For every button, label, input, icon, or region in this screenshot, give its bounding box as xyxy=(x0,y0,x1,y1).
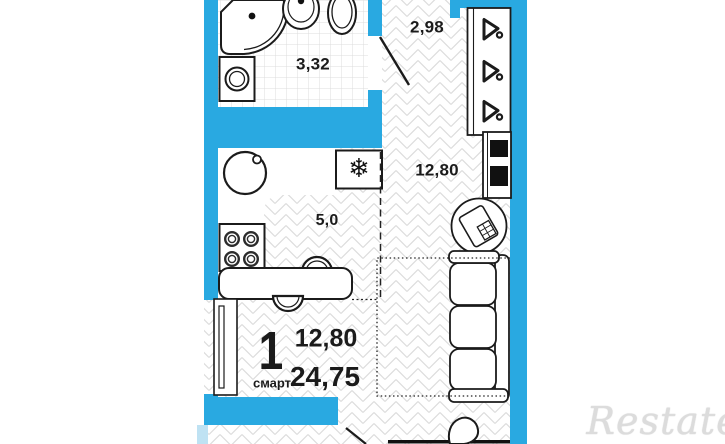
wall-bathroom-band xyxy=(204,107,382,148)
kitchen-area-label: 5,0 xyxy=(316,213,339,229)
bar-counter xyxy=(219,268,352,299)
tv-unit xyxy=(490,166,508,186)
bathroom-area-label: 3,32 xyxy=(296,56,330,73)
sofa-armrest xyxy=(449,251,499,263)
watermark: Restate xyxy=(586,399,725,443)
plan-type-label: смарт xyxy=(253,377,291,390)
wall-top-right-stub xyxy=(450,0,460,18)
sofa-back xyxy=(495,255,509,400)
rooms-count-label: 1 xyxy=(259,324,284,378)
wall-bath-top xyxy=(368,0,382,36)
living-area-value: 12,80 xyxy=(295,327,358,352)
sofa-cushion xyxy=(450,263,496,305)
freezer-icon: ❄ xyxy=(348,154,370,184)
tv-unit xyxy=(490,140,508,157)
hallway-area-label: 2,98 xyxy=(410,19,444,36)
wall-bottom xyxy=(204,397,338,425)
sofa-cushion xyxy=(450,306,496,348)
window xyxy=(214,299,237,395)
wall-balcony-stub xyxy=(197,425,208,444)
wall-left-upper xyxy=(204,0,218,300)
window-frame xyxy=(214,299,237,395)
window-glass xyxy=(219,306,224,388)
sofa-cushion xyxy=(450,349,496,390)
bathtub-faucet-dot xyxy=(249,13,256,20)
sofa xyxy=(449,251,509,402)
total-area-value: 24,75 xyxy=(290,363,360,391)
sink-tap xyxy=(253,156,261,164)
living-room-area-label: 12,80 xyxy=(415,162,459,179)
wardrobe xyxy=(468,8,511,135)
tv-stand xyxy=(483,132,511,198)
sofa-armrest xyxy=(449,389,508,402)
floorplan-drawing xyxy=(0,0,725,444)
floorplan-canvas: 3,32 2,98 12,80 5,0 1 смарт 12,80 24,75 … xyxy=(0,0,725,444)
wall-right xyxy=(510,0,527,444)
armchair xyxy=(452,199,507,254)
